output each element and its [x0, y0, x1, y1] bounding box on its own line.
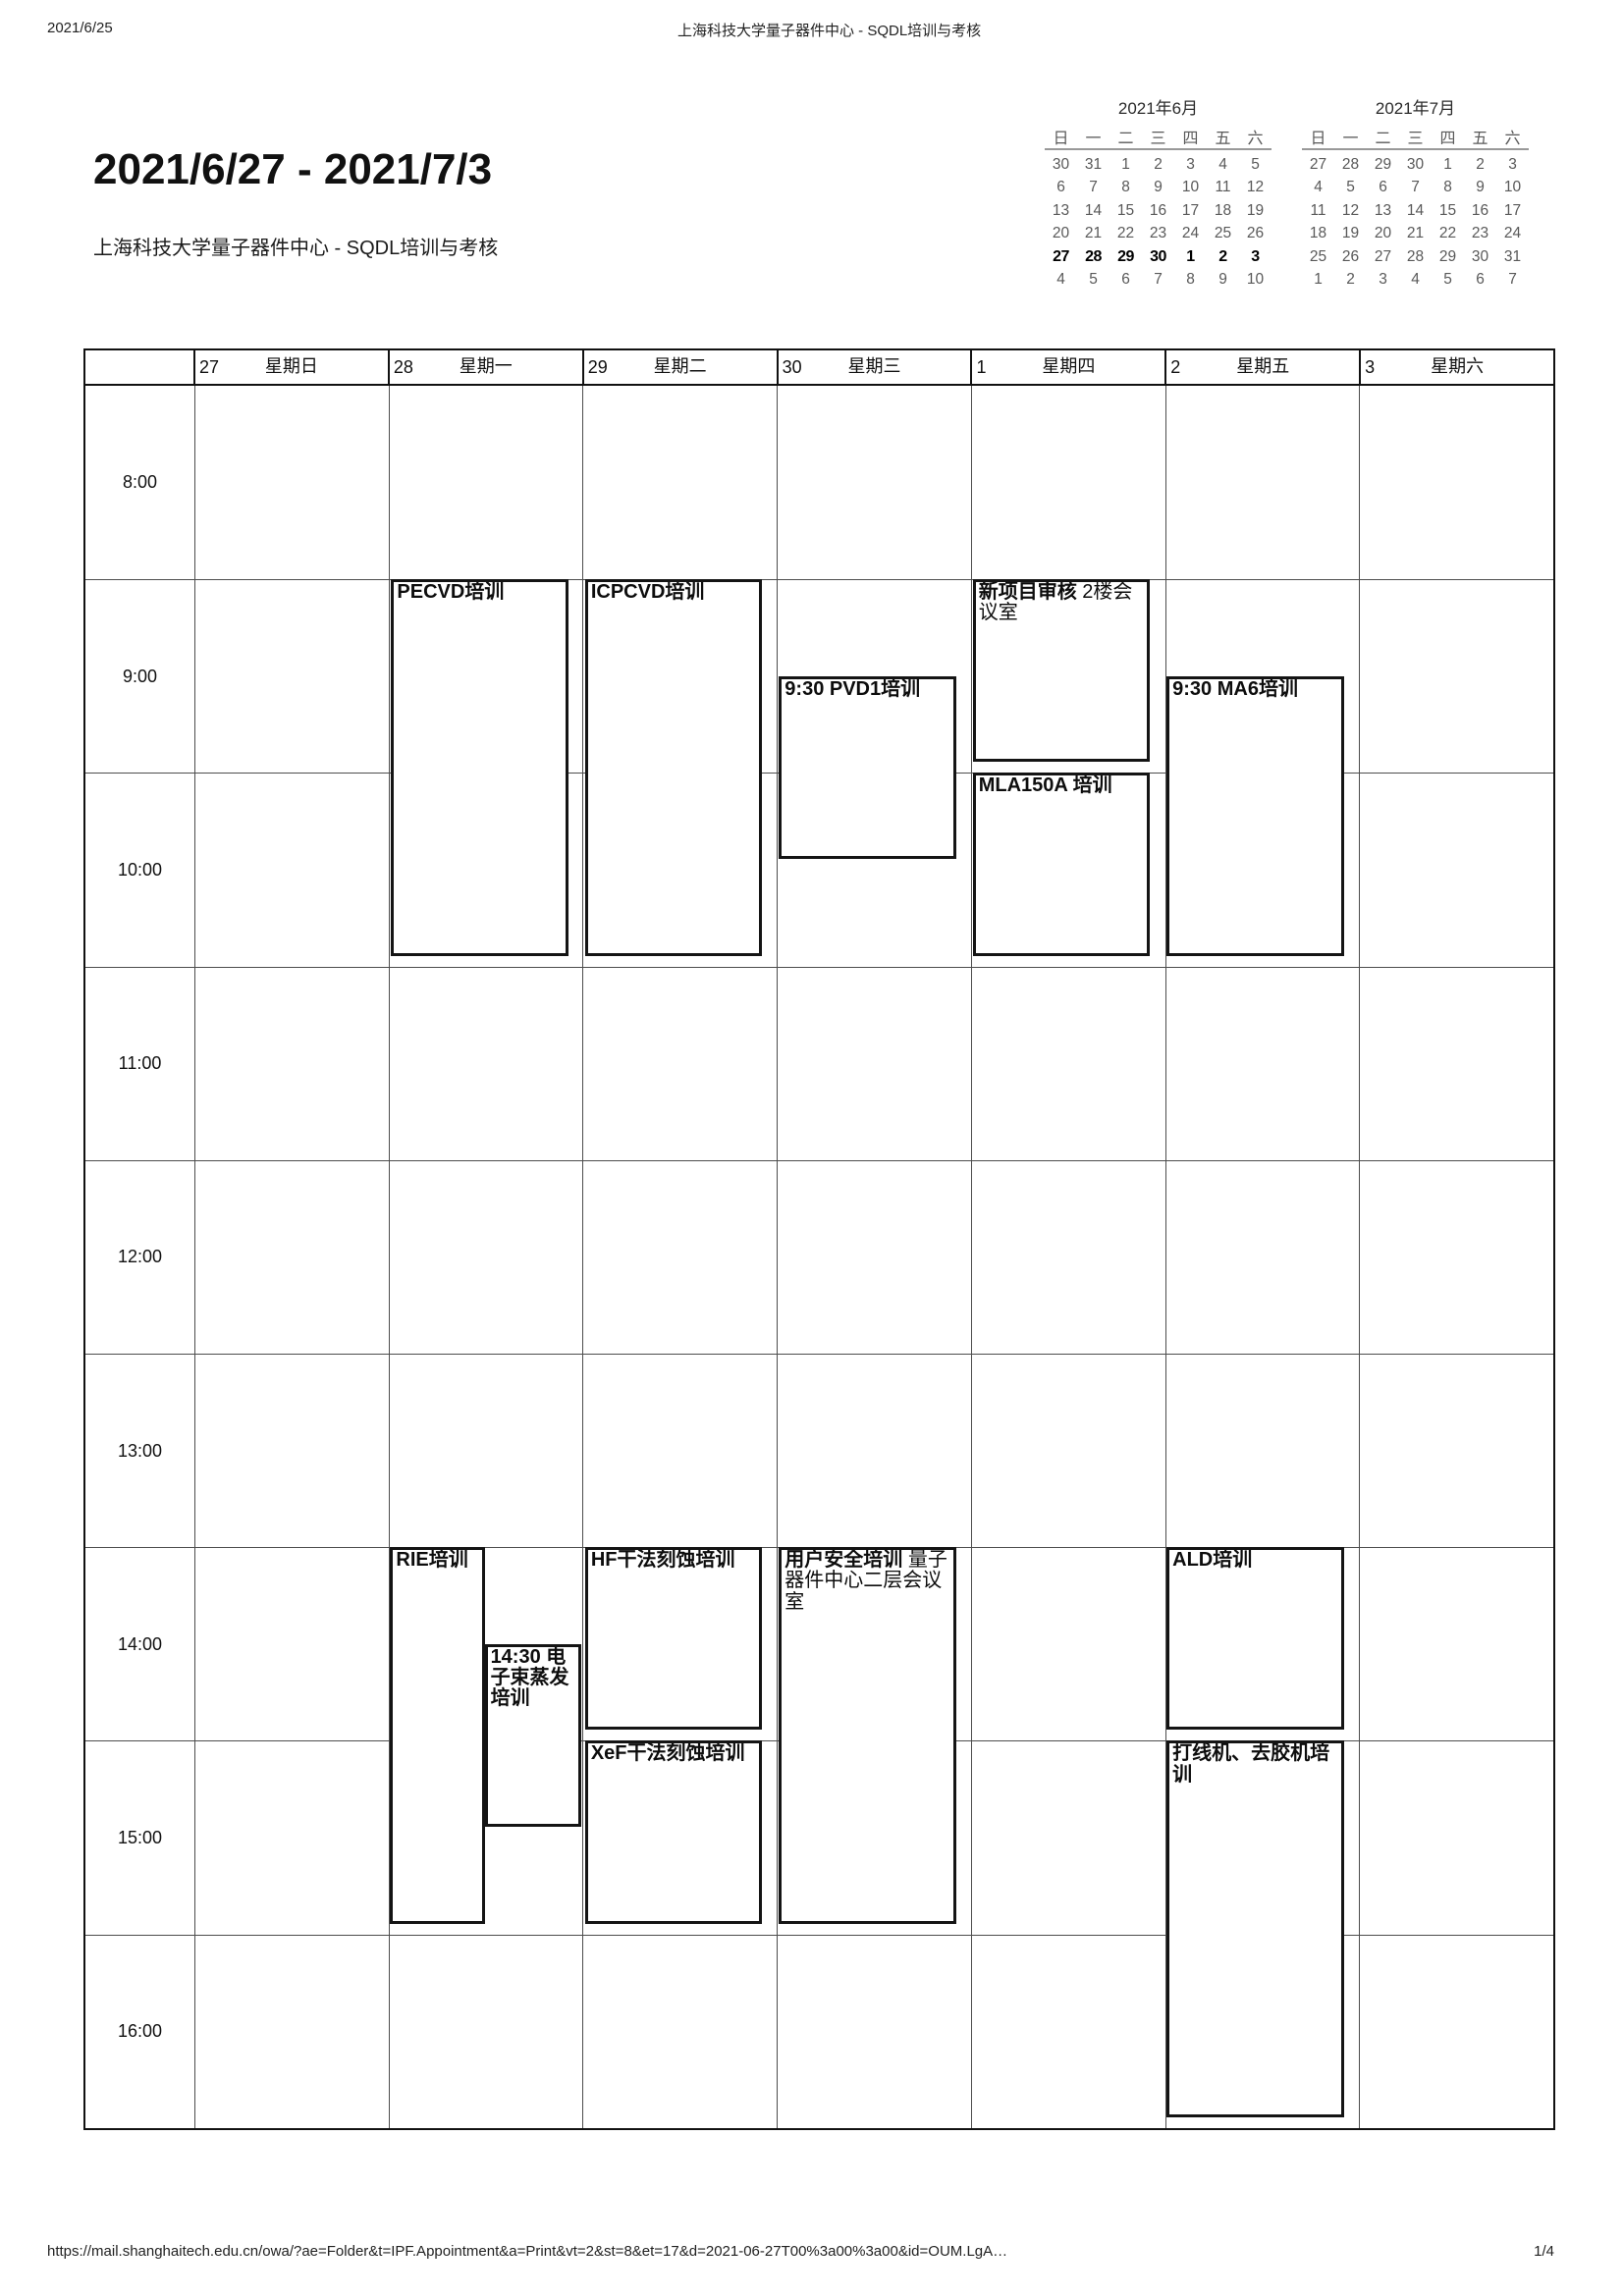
- mini-cal-day: 16: [1142, 202, 1174, 220]
- mini-cal-day: 2: [1464, 156, 1496, 174]
- day-cell: [1166, 1161, 1361, 1354]
- mini-cal-day: 6: [1109, 271, 1142, 289]
- day-cell: [195, 1161, 390, 1354]
- event-title: 打线机、去胶机培训: [1172, 1742, 1329, 1785]
- mini-cal-day: 7: [1142, 271, 1174, 289]
- mini-cal-day: 21: [1399, 225, 1432, 242]
- hour-row: 12:00: [85, 1160, 1553, 1354]
- day-cell: [1360, 774, 1553, 966]
- time-label: 9:00: [85, 580, 195, 773]
- calendar-event: 9:30 MA6培训: [1166, 676, 1343, 956]
- mini-cal-day: 29: [1109, 248, 1142, 266]
- mini-calendar-june: 2021年6月日一二三四五六30311234567891011121314151…: [1045, 94, 1271, 292]
- week-grid-body: 8:009:0010:0011:0012:0013:0014:0015:0016…: [85, 386, 1553, 2128]
- mini-cal-day: 4: [1045, 271, 1077, 289]
- event-title: 9:30 PVD1培训: [784, 678, 920, 700]
- time-label: 16:00: [85, 1936, 195, 2128]
- mini-cal-day: 7: [1399, 179, 1432, 196]
- time-label: 12:00: [85, 1161, 195, 1354]
- day-cell: [195, 1548, 390, 1740]
- event-title: HF干法刻蚀培训: [591, 1549, 735, 1571]
- week-grid-header-row: 27星期日28星期一29星期二30星期三1星期四2星期五3星期六: [85, 350, 1553, 386]
- day-cell: [1360, 1161, 1553, 1354]
- mini-cal-day: 6: [1045, 179, 1077, 196]
- mini-cal-day: 16: [1464, 202, 1496, 220]
- mini-cal-weekday-header: 一: [1077, 125, 1109, 148]
- day-header: 28星期一: [390, 350, 584, 384]
- mini-cal-week-row: 13141516171819: [1045, 199, 1271, 223]
- event-title: MLA150A 培训: [979, 774, 1112, 796]
- day-header: 2星期五: [1166, 350, 1361, 384]
- day-header-date: 29: [588, 357, 608, 378]
- day-header-date: 1: [976, 357, 986, 378]
- mini-cal-day: 12: [1239, 179, 1271, 196]
- mini-cal-week-row: 25262728293031: [1302, 245, 1529, 269]
- day-cell: [1360, 968, 1553, 1160]
- mini-cal-day: 10: [1496, 179, 1529, 196]
- calendar-event: 新项目审核 2楼会议室: [973, 579, 1150, 762]
- mini-cal-day: 11: [1207, 179, 1239, 196]
- event-title: RIE培训: [396, 1549, 467, 1571]
- mini-cal-weekday-header: 一: [1334, 125, 1367, 148]
- time-label: 11:00: [85, 968, 195, 1160]
- time-label: 14:00: [85, 1548, 195, 1740]
- day-cell: [583, 1161, 778, 1354]
- day-cell: [195, 968, 390, 1160]
- day-cell: [1360, 1548, 1553, 1740]
- page-number: 1/4: [1534, 2243, 1554, 2260]
- mini-cal-day: 30: [1399, 156, 1432, 174]
- mini-cal-day: 27: [1367, 248, 1399, 266]
- mini-cal-week-row: 27282930123: [1045, 245, 1271, 269]
- event-title: XeF干法刻蚀培训: [591, 1742, 745, 1764]
- mini-cal-day: 3: [1367, 271, 1399, 289]
- mini-cal-day: 23: [1464, 225, 1496, 242]
- event-title: 9:30 MA6培训: [1172, 678, 1298, 700]
- mini-cal-day: 8: [1174, 271, 1207, 289]
- mini-cal-day: 1: [1174, 248, 1207, 266]
- mini-cal-day: 6: [1464, 271, 1496, 289]
- calendar-event: PECVD培训: [391, 579, 568, 955]
- calendar-event: XeF干法刻蚀培训: [585, 1740, 762, 1923]
- mini-cal-weekday-header: 四: [1174, 125, 1207, 148]
- mini-cal-week-row: 45678910: [1302, 177, 1529, 200]
- mini-cal-day: 1: [1109, 156, 1142, 174]
- time-label: 15:00: [85, 1741, 195, 1934]
- mini-cal-week-row: 11121314151617: [1302, 199, 1529, 223]
- mini-cal-day: 28: [1077, 248, 1109, 266]
- mini-cal-week-row: 18192021222324: [1302, 223, 1529, 246]
- mini-cal-day: 22: [1109, 225, 1142, 242]
- day-cell: [583, 1936, 778, 2128]
- day-cell: [195, 1936, 390, 2128]
- time-label: 13:00: [85, 1355, 195, 1547]
- mini-cal-day: 14: [1077, 202, 1109, 220]
- mini-cal-day: 27: [1045, 248, 1077, 266]
- print-header-title: 上海科技大学量子器件中心 - SQDL培训与考核: [677, 20, 981, 40]
- mini-cal-week-row: 45678910: [1045, 269, 1271, 293]
- day-cell: [972, 1161, 1166, 1354]
- mini-cal-day: 2: [1334, 271, 1367, 289]
- mini-cal-day: 10: [1239, 271, 1271, 289]
- event-title: ALD培训: [1172, 1549, 1252, 1571]
- mini-cal-day: 1: [1432, 156, 1464, 174]
- mini-cal-day: 25: [1207, 225, 1239, 242]
- day-cell: [972, 968, 1166, 1160]
- day-cell: [195, 386, 390, 579]
- day-cell: [972, 1548, 1166, 1740]
- calendar-event: MLA150A 培训: [973, 773, 1150, 955]
- mini-calendar-july: 2021年7月日一二三四五六27282930123456789101112131…: [1302, 94, 1529, 292]
- mini-cal-day: 12: [1334, 202, 1367, 220]
- calendar-event: ICPCVD培训: [585, 579, 762, 955]
- calendar-event: 14:30 电子束蒸发培训: [485, 1644, 582, 1827]
- day-header-date: 28: [394, 357, 413, 378]
- day-header-weekday: 星期六: [1361, 350, 1553, 383]
- mini-cal-day: 27: [1302, 156, 1334, 174]
- mini-cal-day: 17: [1496, 202, 1529, 220]
- mini-cal-weekday-header: 三: [1399, 125, 1432, 148]
- calendar-event: 用户安全培训 量子器件中心二层会议室: [779, 1547, 955, 1923]
- footer-url: https://mail.shanghaitech.edu.cn/owa/?ae…: [47, 2243, 1007, 2260]
- mini-cal-title: 2021年6月: [1045, 94, 1271, 119]
- mini-cal-day: 2: [1207, 248, 1239, 266]
- day-header-date: 2: [1170, 357, 1180, 378]
- mini-cal-day: 8: [1432, 179, 1464, 196]
- mini-cal-weekday-row: 日一二三四五六: [1045, 125, 1271, 150]
- mini-cal-day: 25: [1302, 248, 1334, 266]
- time-column-header: [85, 350, 195, 384]
- hour-row: 13:00: [85, 1354, 1553, 1547]
- day-header-date: 3: [1365, 357, 1375, 378]
- mini-cal-week-row: 20212223242526: [1045, 223, 1271, 246]
- mini-cal-day: 30: [1464, 248, 1496, 266]
- mini-cal-week-row: 6789101112: [1045, 177, 1271, 200]
- mini-cal-day: 26: [1239, 225, 1271, 242]
- day-cell: [1360, 1741, 1553, 1934]
- mini-cal-day: 8: [1109, 179, 1142, 196]
- day-cell: [972, 1741, 1166, 1934]
- mini-cal-day: 10: [1174, 179, 1207, 196]
- day-header-date: 30: [783, 357, 802, 378]
- day-header-date: 27: [199, 357, 219, 378]
- day-cell: [1360, 386, 1553, 579]
- mini-cal-day: 15: [1109, 202, 1142, 220]
- mini-cal-day: 5: [1432, 271, 1464, 289]
- day-header-weekday: 星期一: [390, 350, 582, 383]
- time-label: 10:00: [85, 774, 195, 966]
- mini-cal-day: 6: [1367, 179, 1399, 196]
- day-header: 30星期三: [779, 350, 973, 384]
- day-cell: [390, 386, 584, 579]
- day-cell: [195, 1741, 390, 1934]
- mini-cal-day: 29: [1367, 156, 1399, 174]
- day-cell: [195, 774, 390, 966]
- day-cell: [972, 386, 1166, 579]
- mini-cal-day: 5: [1239, 156, 1271, 174]
- page-title: 2021/6/27 - 2021/7/3: [93, 145, 492, 194]
- mini-cal-day: 7: [1077, 179, 1109, 196]
- time-label: 8:00: [85, 386, 195, 579]
- mini-cal-day: 3: [1239, 248, 1271, 266]
- mini-cal-day: 1: [1302, 271, 1334, 289]
- day-cell: [390, 1161, 584, 1354]
- day-cell: [390, 1355, 584, 1547]
- mini-cal-day: 26: [1334, 248, 1367, 266]
- day-cell: [778, 1936, 972, 2128]
- day-cell: [1360, 580, 1553, 773]
- mini-cal-weekday-header: 六: [1239, 125, 1271, 148]
- mini-cal-day: 9: [1207, 271, 1239, 289]
- mini-cal-day: 24: [1174, 225, 1207, 242]
- hour-row: 11:00: [85, 967, 1553, 1160]
- day-cell: [778, 968, 972, 1160]
- day-cell: [390, 968, 584, 1160]
- day-cell: [778, 1161, 972, 1354]
- print-date: 2021/6/25: [47, 20, 113, 36]
- day-cell: [972, 1936, 1166, 2128]
- mini-cal-day: 24: [1496, 225, 1529, 242]
- mini-cal-day: 29: [1432, 248, 1464, 266]
- mini-cal-week-row: 1234567: [1302, 269, 1529, 293]
- mini-cal-day: 23: [1142, 225, 1174, 242]
- mini-cal-day: 13: [1045, 202, 1077, 220]
- day-cell: [1360, 1936, 1553, 2128]
- mini-cal-weekday-header: 日: [1045, 125, 1077, 148]
- day-cell: [195, 1355, 390, 1547]
- day-cell: [390, 1936, 584, 2128]
- mini-cal-day: 14: [1399, 202, 1432, 220]
- day-cell: [972, 1355, 1166, 1547]
- calendar-event: ALD培训: [1166, 1547, 1343, 1730]
- day-header: 27星期日: [195, 350, 390, 384]
- event-title: ICPCVD培训: [591, 581, 705, 603]
- mini-cal-day: 19: [1239, 202, 1271, 220]
- mini-cal-day: 7: [1496, 271, 1529, 289]
- mini-cal-weekday-header: 二: [1109, 125, 1142, 148]
- event-title: PECVD培训: [397, 581, 504, 603]
- mini-cal-day: 11: [1302, 202, 1334, 220]
- day-cell: [1166, 968, 1361, 1160]
- mini-cal-day: 20: [1367, 225, 1399, 242]
- mini-cal-day: 13: [1367, 202, 1399, 220]
- mini-cal-weekday-header: 四: [1432, 125, 1464, 148]
- mini-cal-day: 4: [1399, 271, 1432, 289]
- day-cell: [583, 386, 778, 579]
- mini-cal-week-row: 27282930123: [1302, 153, 1529, 177]
- mini-cal-weekday-header: 六: [1496, 125, 1529, 148]
- day-header: 3星期六: [1361, 350, 1553, 384]
- day-cell: [1166, 386, 1361, 579]
- mini-cal-day: 28: [1334, 156, 1367, 174]
- mini-cal-day: 28: [1399, 248, 1432, 266]
- mini-cal-day: 9: [1464, 179, 1496, 196]
- day-header-weekday: 星期三: [779, 350, 971, 383]
- day-header-weekday: 星期五: [1166, 350, 1359, 383]
- mini-cal-day: 18: [1207, 202, 1239, 220]
- day-cell: [778, 386, 972, 579]
- day-cell: [195, 580, 390, 773]
- mini-cal-day: 17: [1174, 202, 1207, 220]
- mini-cal-day: 4: [1302, 179, 1334, 196]
- day-cell: [583, 1355, 778, 1547]
- mini-cal-day: 4: [1207, 156, 1239, 174]
- week-grid: 27星期日28星期一29星期二30星期三1星期四2星期五3星期六 8:009:0…: [83, 348, 1555, 2130]
- mini-cal-weekday-header: 日: [1302, 125, 1334, 148]
- day-header: 29星期二: [584, 350, 779, 384]
- mini-cal-day: 21: [1077, 225, 1109, 242]
- mini-cal-weekday-header: 二: [1367, 125, 1399, 148]
- calendar-event: HF干法刻蚀培训: [585, 1547, 762, 1730]
- page-subtitle: 上海科技大学量子器件中心 - SQDL培训与考核: [93, 232, 498, 260]
- mini-cal-day: 31: [1496, 248, 1529, 266]
- mini-cal-day: 18: [1302, 225, 1334, 242]
- hour-row: 8:00: [85, 386, 1553, 579]
- day-header-weekday: 星期四: [972, 350, 1164, 383]
- mini-cal-weekday-row: 日一二三四五六: [1302, 125, 1529, 150]
- mini-cal-day: 5: [1334, 179, 1367, 196]
- day-cell: [583, 968, 778, 1160]
- mini-cal-day: 15: [1432, 202, 1464, 220]
- mini-cal-title: 2021年7月: [1302, 94, 1529, 119]
- event-title: 用户安全培训: [784, 1549, 902, 1571]
- calendar-event: RIE培训: [390, 1547, 484, 1923]
- event-title: 14:30 电子束蒸发培训: [491, 1646, 569, 1709]
- day-header-weekday: 星期二: [584, 350, 777, 383]
- day-header: 1星期四: [972, 350, 1166, 384]
- mini-cal-day: 3: [1496, 156, 1529, 174]
- mini-cal-weekday-header: 五: [1207, 125, 1239, 148]
- mini-cal-day: 30: [1142, 248, 1174, 266]
- mini-cal-day: 20: [1045, 225, 1077, 242]
- mini-cal-week-row: 303112345: [1045, 153, 1271, 177]
- mini-cal-day: 22: [1432, 225, 1464, 242]
- calendar-event: 9:30 PVD1培训: [779, 676, 955, 859]
- mini-cal-weekday-header: 三: [1142, 125, 1174, 148]
- mini-cal-day: 9: [1142, 179, 1174, 196]
- mini-cal-day: 2: [1142, 156, 1174, 174]
- mini-cal-weekday-header: 五: [1464, 125, 1496, 148]
- day-cell: [1166, 1355, 1361, 1547]
- event-title: 新项目审核: [979, 581, 1077, 603]
- calendar-event: 打线机、去胶机培训: [1166, 1740, 1343, 2116]
- mini-cal-day: 31: [1077, 156, 1109, 174]
- mini-cal-day: 5: [1077, 271, 1109, 289]
- mini-cal-day: 30: [1045, 156, 1077, 174]
- day-header-weekday: 星期日: [195, 350, 388, 383]
- day-cell: [778, 1355, 972, 1547]
- mini-cal-day: 3: [1174, 156, 1207, 174]
- mini-cal-day: 19: [1334, 225, 1367, 242]
- day-cell: [1360, 1355, 1553, 1547]
